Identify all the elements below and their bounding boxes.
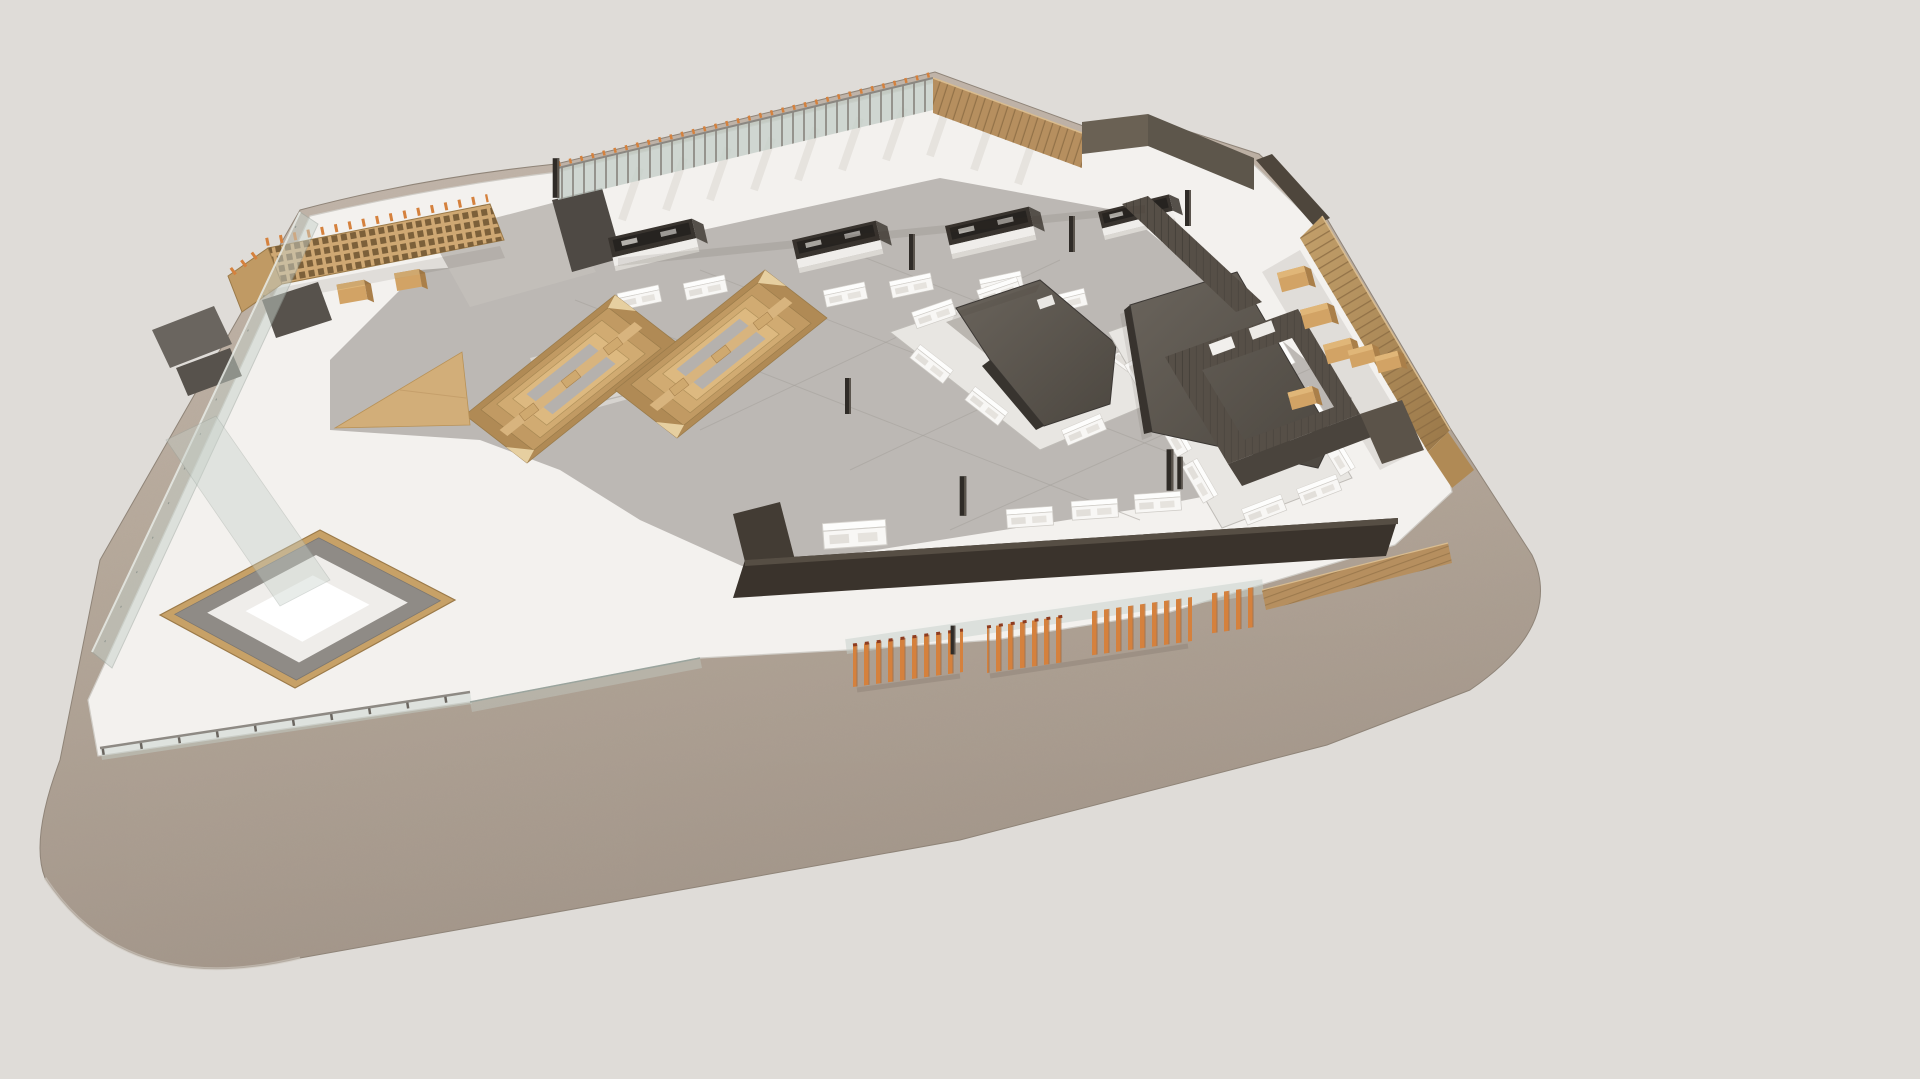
column — [909, 234, 915, 270]
column — [553, 158, 560, 198]
render-canvas — [0, 0, 1920, 1079]
architectural-render — [0, 0, 1920, 1079]
column — [1167, 449, 1174, 490]
column — [1069, 216, 1075, 252]
column — [951, 626, 956, 655]
fin-group — [1207, 587, 1255, 634]
column — [845, 378, 851, 414]
column — [1177, 457, 1182, 489]
column — [1185, 190, 1191, 226]
column — [960, 476, 967, 516]
